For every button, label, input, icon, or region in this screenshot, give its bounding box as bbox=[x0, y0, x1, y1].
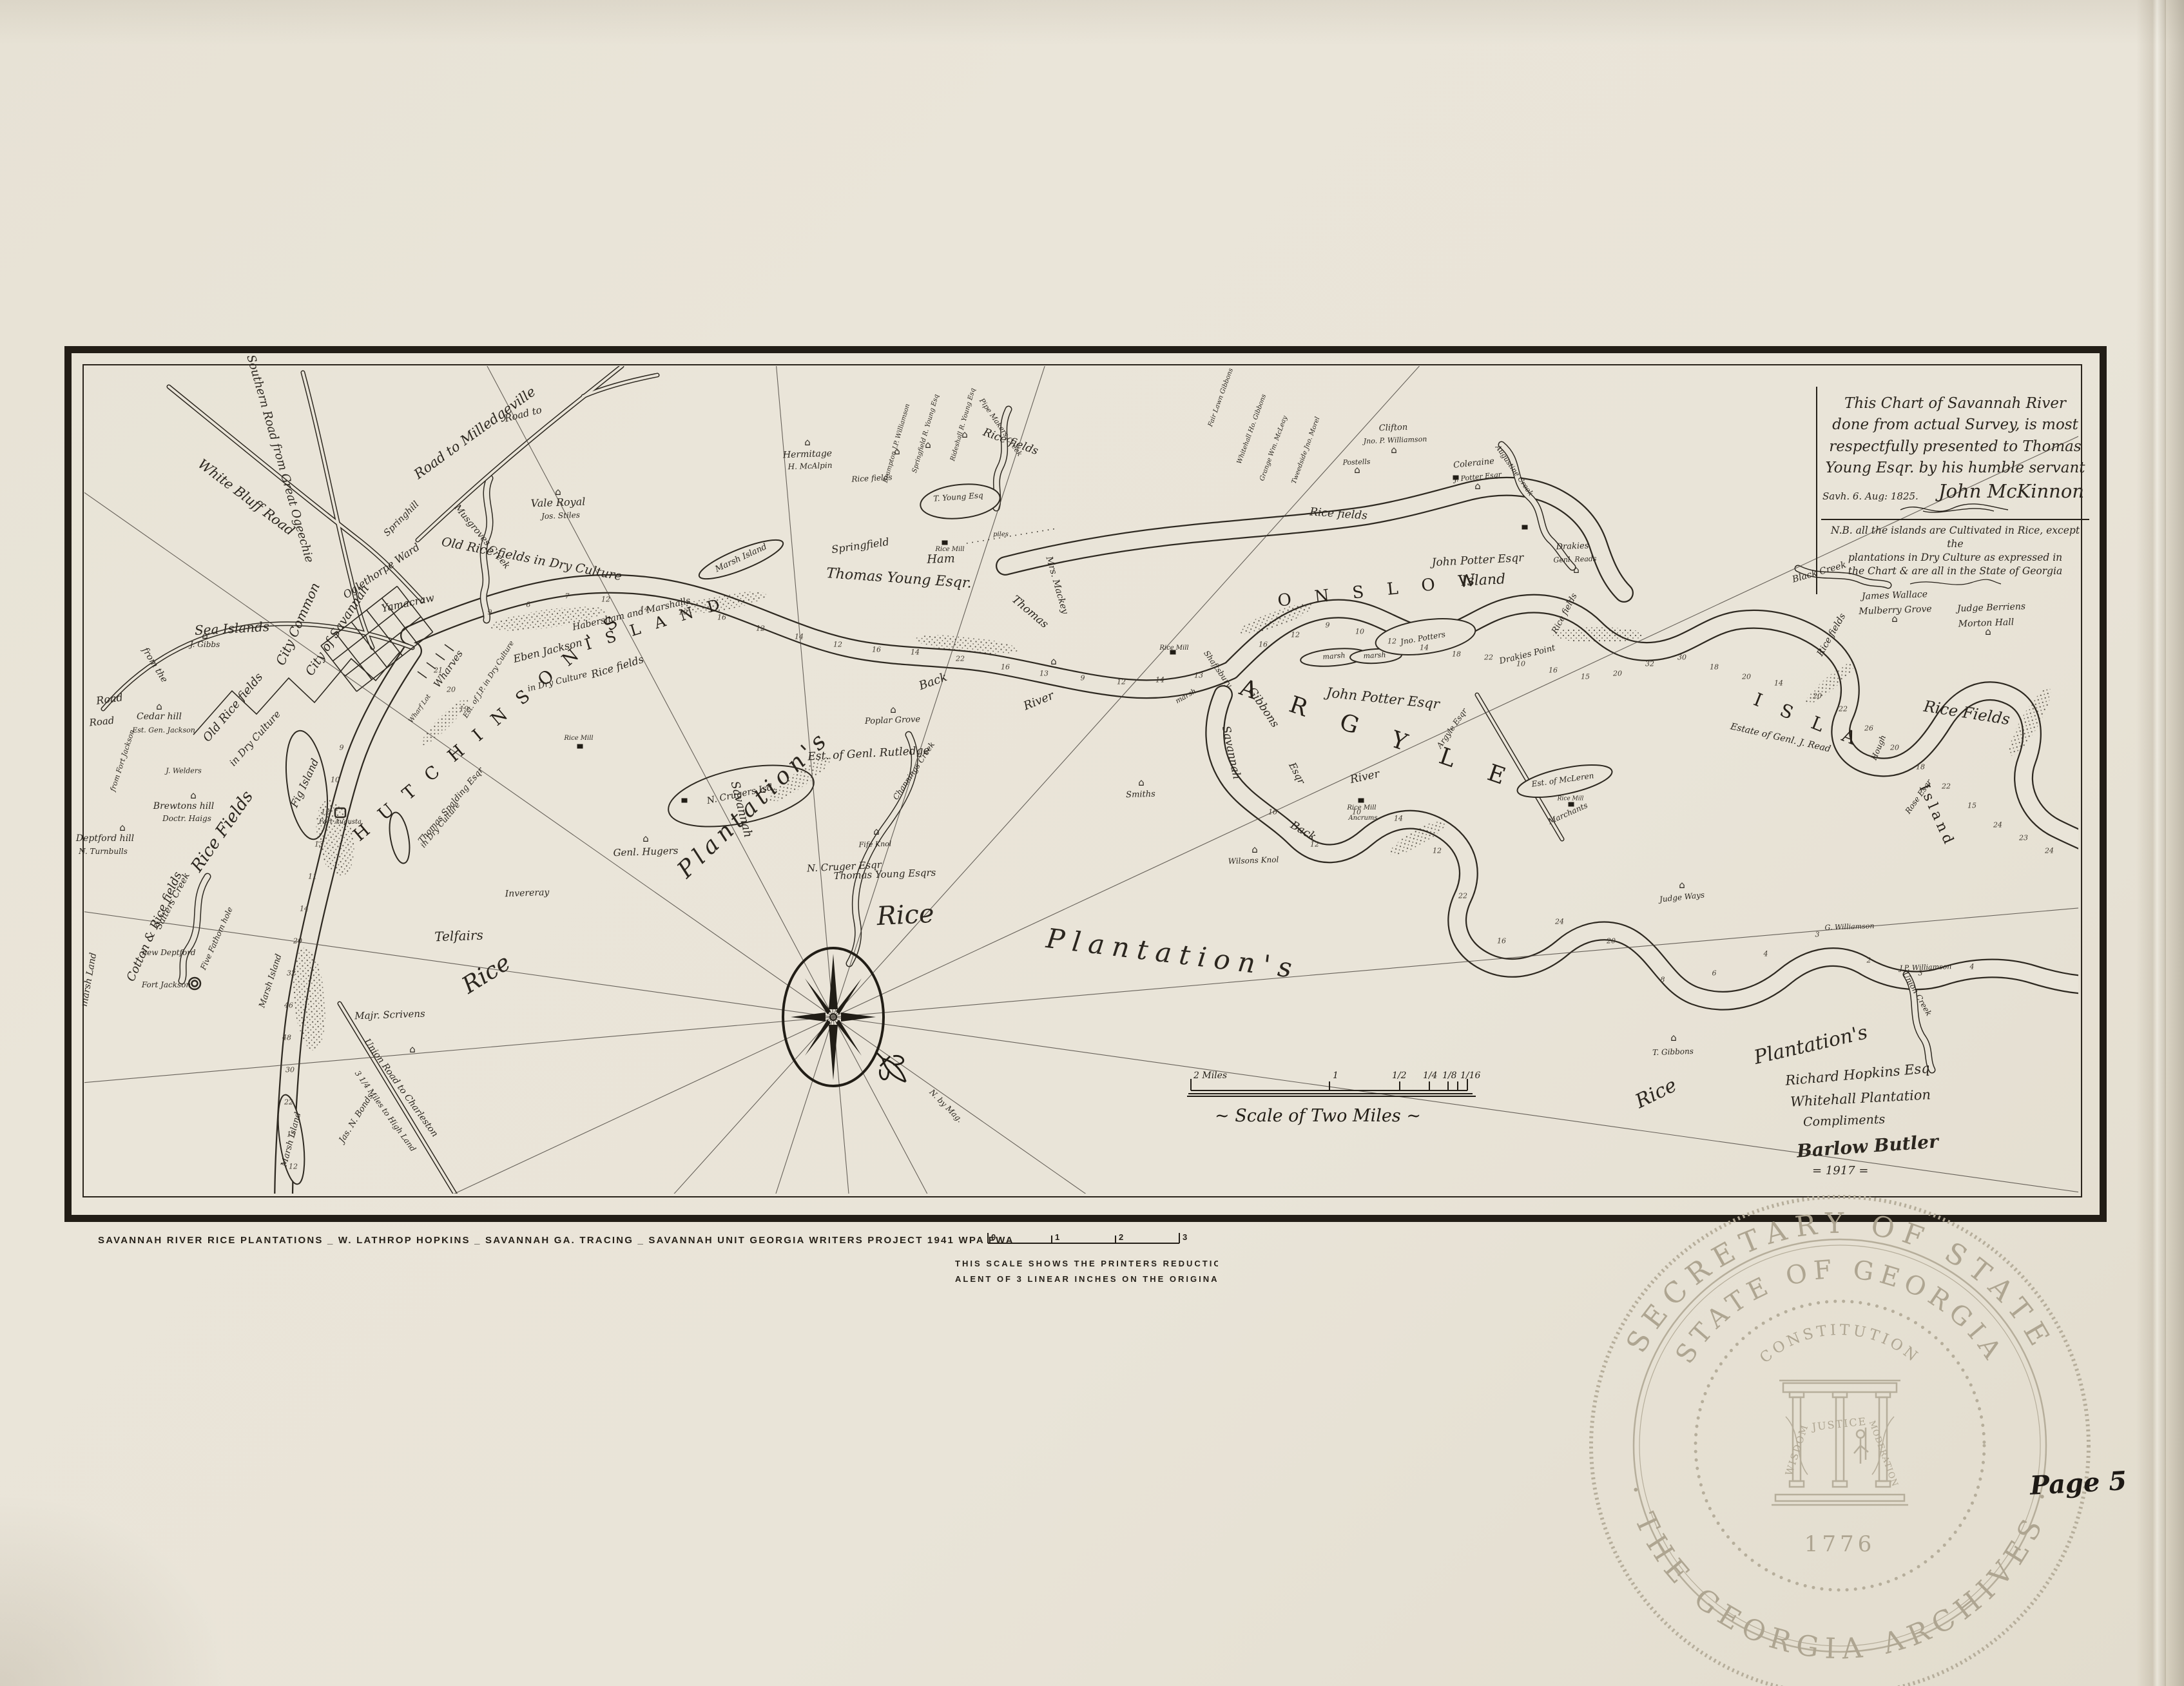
seal-constitution-text: CONSTITUTION bbox=[1757, 1322, 1923, 1367]
map-scale-caption: ~ Scale of Two Miles ~ bbox=[1215, 1106, 1421, 1126]
cartouche-line: done from actual Survey, is most bbox=[1821, 414, 2089, 436]
cartouche-line: This Chart of Savannah River bbox=[1821, 393, 2089, 414]
cartouche: This Chart of Savannah River done from a… bbox=[1816, 387, 2093, 594]
printer-scale-tick: 3 bbox=[1183, 1232, 1187, 1242]
scale-tick-label: 1/8 bbox=[1442, 1071, 1457, 1081]
cartouche-signature: John McKinnon bbox=[1938, 480, 2084, 502]
cartouche-note-line: N.B. all the islands are Cultivated in R… bbox=[1821, 524, 2089, 551]
seal-year: 1776 bbox=[1804, 1531, 1876, 1557]
city-street-grid bbox=[193, 528, 1057, 735]
printer-scale-note: ALENT OF 3 LINEAR INCHES ON THE ORIGINAL… bbox=[955, 1274, 1218, 1284]
scanned-map-sheet: 2 Miles 1 1/2 1/4 1/8 1/16 ~ Scale of Tw… bbox=[0, 0, 2184, 1686]
printer-reduction-scale: 0 1 2 3 THIS SCALE SHOWS THE PRINTERS RE… bbox=[947, 1220, 1218, 1297]
scale-tick-label: 1/2 bbox=[1392, 1071, 1407, 1081]
scale-tick-label: 1 bbox=[1333, 1071, 1338, 1081]
georgia-archives-embossed-seal: SECRETARY OF STATE · THE GEORGIA ARCHIVE… bbox=[1569, 1175, 2111, 1686]
cartouche-note-line: the Chart & are all in the State of Geor… bbox=[1821, 565, 2089, 578]
printer-scale-tick: 2 bbox=[1119, 1232, 1123, 1242]
seal-banner-moderation: MODERATION bbox=[1867, 1419, 1900, 1488]
rhumb-line bbox=[0, 0, 1681, 1686]
cartouche-line: respectfully presented to Thomas bbox=[1821, 436, 2089, 458]
scale-tick-label: 2 Miles bbox=[1193, 1071, 1227, 1081]
scale-tick-label: 1/16 bbox=[1460, 1071, 1481, 1081]
svg-text:CONSTITUTION: CONSTITUTION bbox=[1757, 1322, 1923, 1367]
printer-scale-note: THIS SCALE SHOWS THE PRINTERS REDUCTION … bbox=[955, 1259, 1218, 1268]
rhumb-line bbox=[676, 0, 991, 1686]
scale-tick-label: 1/4 bbox=[1423, 1071, 1438, 1081]
seal-arch-columns bbox=[1772, 1381, 1908, 1505]
note-flourish bbox=[1907, 579, 2004, 588]
dedication-line: Compliments bbox=[1803, 1112, 1886, 1129]
printer-scale-tick: 1 bbox=[1055, 1232, 1059, 1242]
fleur-de-lis-icon bbox=[866, 1042, 916, 1092]
page-number-label: Page 5 bbox=[2029, 1466, 2127, 1501]
cartouche-line: Young Esqr. by his humble servant bbox=[1821, 458, 2089, 479]
map-scale-bar: 2 Miles 1 1/2 1/4 1/8 1/16 ~ Scale of Tw… bbox=[1187, 1071, 1481, 1126]
cartouche-date: Savh. 6. Aug: 1825. bbox=[1822, 490, 1918, 502]
signature-flourish bbox=[1897, 503, 2013, 515]
seal-banner-wisdom: WISDOM bbox=[1783, 1422, 1811, 1477]
rhumb-line bbox=[276, 0, 1391, 1686]
printer-scale-tick: 0 bbox=[991, 1232, 996, 1242]
map-title-caption: SAVANNAH RIVER RICE PLANTATIONS _ W. LAT… bbox=[98, 1235, 1014, 1246]
cartouche-note: N.B. all the islands are Cultivated in R… bbox=[1821, 519, 2089, 592]
cartouche-note-line: plantations in Dry Culture as expressed … bbox=[1821, 551, 2089, 565]
